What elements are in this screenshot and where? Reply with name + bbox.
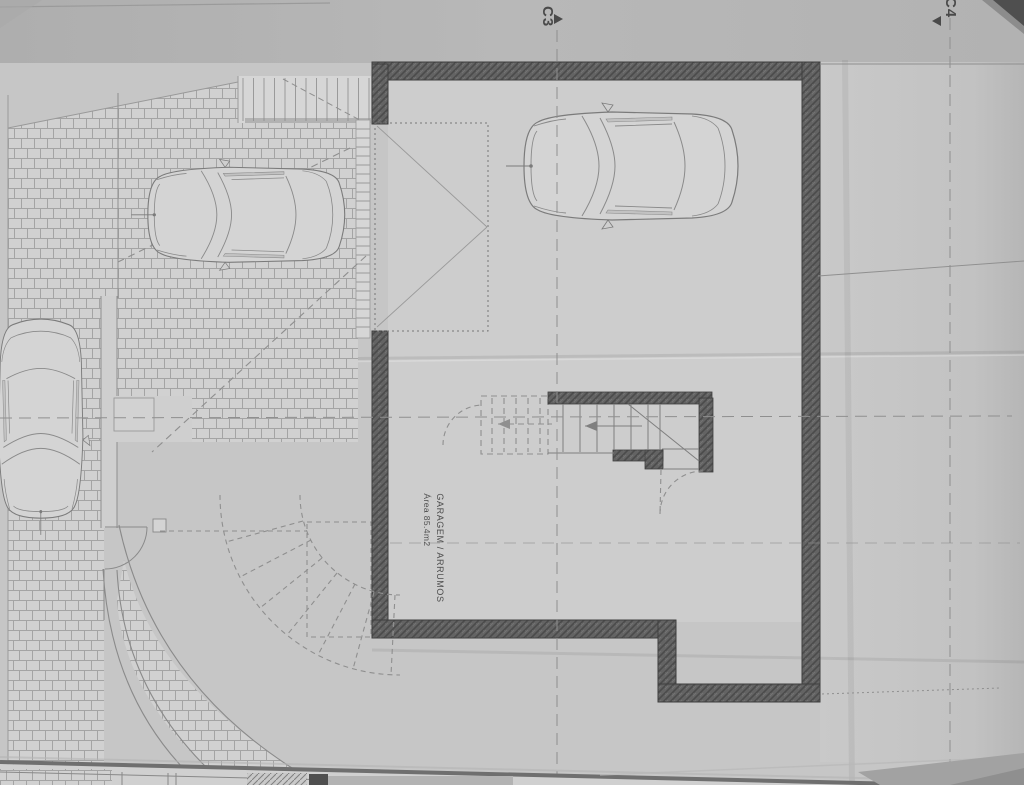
car-icon	[506, 103, 738, 229]
landing-pad	[114, 398, 154, 431]
grid-marker-c3: C3	[539, 6, 556, 27]
grid-marker-c4: C4	[942, 0, 959, 18]
post	[153, 519, 166, 532]
wall-top	[372, 62, 820, 80]
room-label: GARAGEM / ARRUMOS Área 85.4m2	[419, 493, 447, 602]
scanned-floor-plan: C3 C4 GARAGEM / ARRUMOS Área 85.4m2	[0, 0, 1024, 785]
wall-bottom-left	[372, 620, 676, 638]
lower-wall-segment	[309, 774, 328, 785]
wall-right	[802, 62, 820, 702]
entry-steps	[238, 76, 371, 125]
stair-wall-corner	[645, 450, 663, 469]
stair-wall-right	[699, 398, 713, 472]
wall-left-upper	[372, 64, 388, 124]
stair-wall-top	[548, 392, 712, 404]
room-area: Área 85.4m2	[419, 493, 433, 602]
drain-channel	[356, 120, 370, 338]
room-name: GARAGEM / ARRUMOS	[433, 493, 447, 602]
car-icon	[0, 319, 90, 535]
table-surface-band	[0, 0, 1024, 63]
car-icon	[131, 159, 344, 270]
floor-plan-drawing	[0, 0, 1024, 785]
wall-bottom-right	[658, 684, 820, 702]
